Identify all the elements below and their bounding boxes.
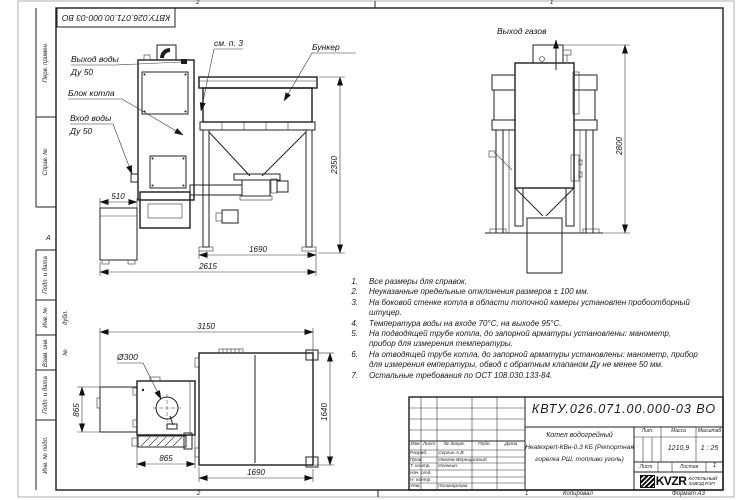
dim-plan-boiler-width: 865 [159,454,173,463]
dim-front-ash-width: 510 [111,192,125,201]
factory-name-line2: ЗАВОД РЭП [688,481,717,486]
callout-hopper: Бункер [312,42,340,52]
dim-plan-total-width: 3150 [197,322,215,331]
callout-boiler-block: Блок котла [68,88,115,98]
callout-flue-dia: Ø300 [116,352,138,362]
dim-plan-ash-depth: 865 [72,403,81,417]
drawing-sheet: KVZR.RUKVZR.RUKVZR.RUKVZR.RUKVZR.RUKVZR.… [0,0,750,500]
kvzr-logo-icon [641,476,654,487]
dim-plan-hopper-width: 1690 [247,468,265,477]
sheet-frame [18,1,734,497]
dim-front-total-width: 2615 [198,262,217,271]
callout-gas-out: Выход газов [497,26,547,36]
dim-side-height: 2800 [615,137,624,156]
dim-front-hopper-width: 1690 [249,245,267,254]
drawing-canvas: 510 1690 2615 2350 Выход воды Ду 50 Блок… [0,0,750,500]
factory-name: КОТЕЛЬНЫЙ ЗАВОД РЭП [688,476,717,486]
factory-logo: KVZR КОТЕЛЬНЫЙ ЗАВОД РЭП [635,472,723,490]
callout-water-in-line1: Вход воды [70,113,112,123]
callout-water-out-line1: Выход воды [71,54,120,64]
callout-water-out-line2: Ду 50 [70,67,93,77]
callout-water-in-line2: Ду 50 [69,126,92,136]
dim-plan-hopper-depth: 1640 [320,403,329,421]
kvzr-logo-text: KVZR [656,474,687,488]
dim-front-height: 2350 [330,156,339,175]
callout-see-note: см. п. 3 [214,38,243,48]
